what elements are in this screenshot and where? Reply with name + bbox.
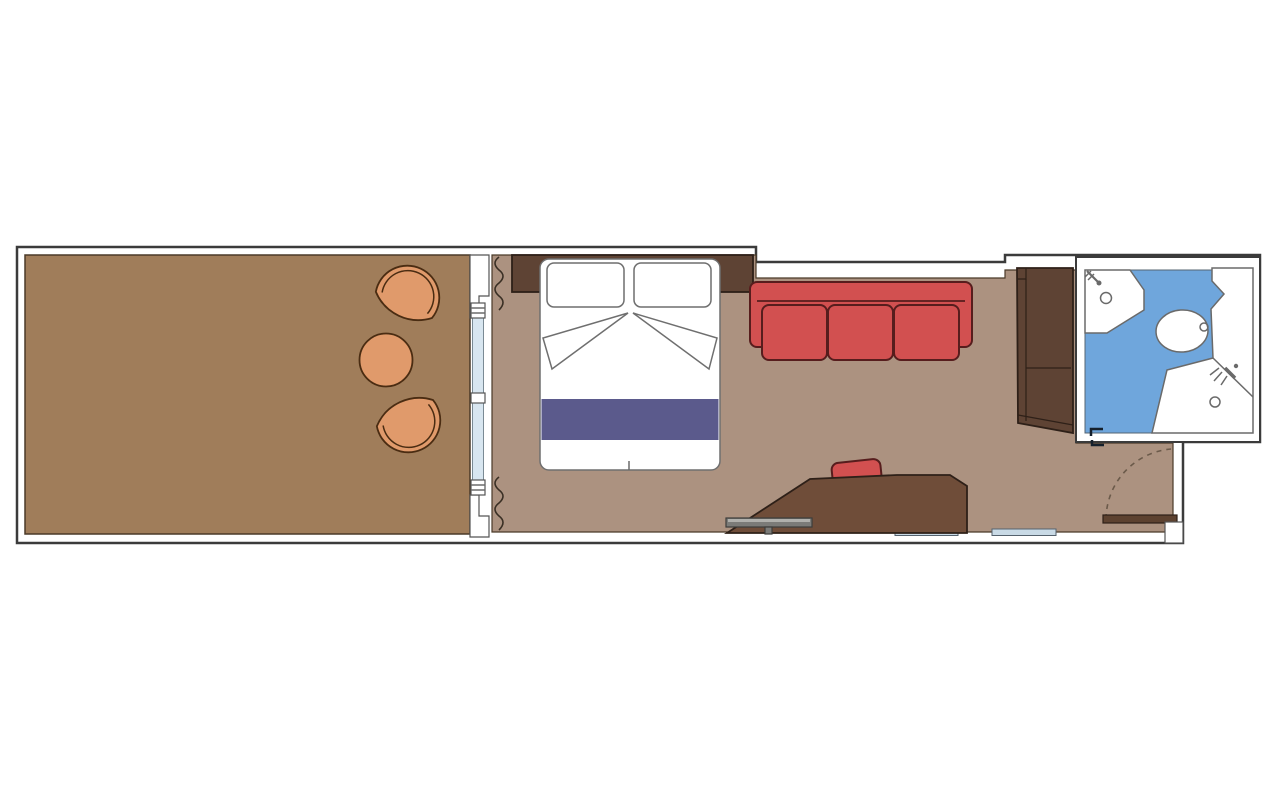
wall-strip-right (992, 529, 1056, 536)
balcony-table (360, 334, 413, 387)
door-frame-bottom (471, 480, 485, 495)
bed-runner (542, 399, 719, 440)
wardrobe (1017, 268, 1073, 433)
entry-wall-stub (1165, 522, 1183, 543)
tv-bar-highlight (728, 519, 810, 522)
bed-pillow-right (634, 263, 711, 307)
door-frame-top (471, 303, 485, 318)
door-frame-mid (471, 393, 485, 403)
bed-pillow-left (547, 263, 624, 307)
bathroom (1076, 257, 1260, 445)
floor-plan-svg (0, 0, 1280, 792)
tv-stand-stem (765, 527, 772, 534)
double-bed (540, 259, 720, 470)
sofa-cushion-3 (894, 305, 959, 360)
floor-plan (0, 0, 1280, 792)
sofa-cushion-2 (828, 305, 893, 360)
sofa-cushion-1 (762, 305, 827, 360)
sofa (750, 282, 972, 360)
